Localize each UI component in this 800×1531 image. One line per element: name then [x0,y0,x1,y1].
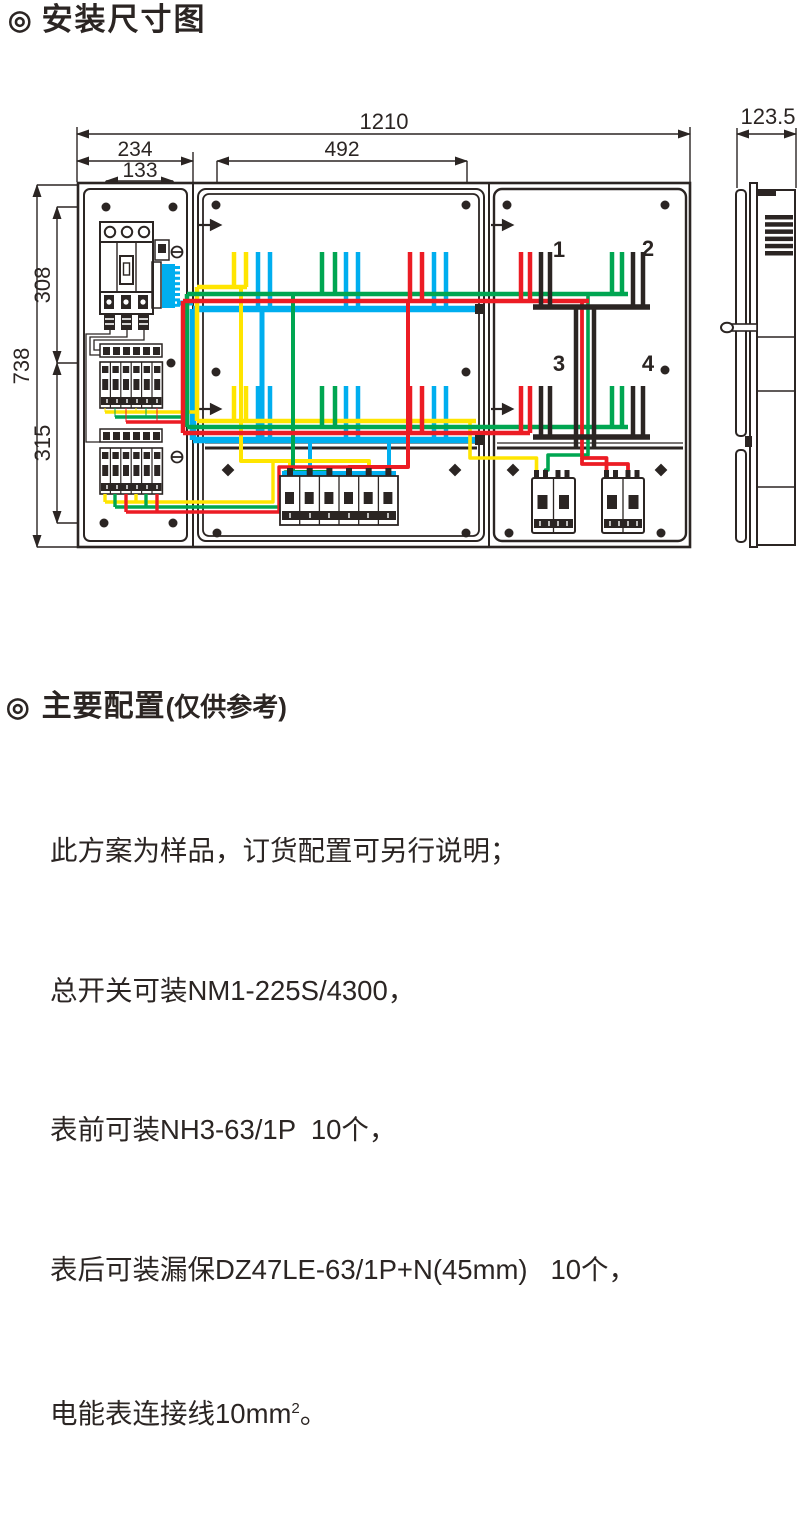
dim-label-738: 738 [9,348,34,385]
side-door-upper [736,190,746,436]
dim-label-1210: 1210 [360,109,409,134]
config-line-3: 表前可装NH3-63/1P 10个， [50,1107,794,1154]
side-door-lower [736,450,746,542]
config-subtitle: (仅供参考) [166,687,287,724]
config-line-1: 此方案为样品，订货配置可另行说明； [50,828,794,875]
config-heading: ◎ 主要配置 (仅供参考) [6,681,794,725]
dim-label-133: 133 [122,159,157,182]
side-flange [750,183,757,547]
dim-label-234: 234 [117,138,152,161]
mini-breaker-row-2 [100,448,162,494]
leakage-breaker-group-a [532,470,575,533]
dim-label-308: 308 [30,267,55,304]
main-breaker-lugs [104,314,149,330]
page: { "page": { "bullet": "◎", "title": "安装尺… [0,0,800,954]
dimension-overall-height [37,185,80,547]
meter-label-2: 2 [642,236,654,261]
main-configuration-section: ◎ 主要配置 (仅供参考) 此方案为样品，订货配置可另行说明； 总开关可装NM1… [6,681,794,1531]
config-line-5-text: 电能表连接线10mm [50,1398,291,1429]
config-line-5-period: 。 [300,1398,328,1429]
config-line-5-superscript: 2 [291,1400,299,1417]
meter-label-1: 1 [553,237,565,262]
enclosure-side-view [721,128,796,547]
meter-label-3: 3 [553,351,565,376]
config-bullet-icon: ◎ [6,692,30,723]
leakage-breaker-group-b [602,470,644,533]
config-line-2: 总开关可装NM1-225S/4300， [50,968,794,1015]
dimension-overall-width [77,127,690,182]
config-line-5: 电能表连接线10mm2。 [50,1386,794,1438]
side-body [757,190,795,545]
dimension-depth [737,128,796,188]
meter-post-breaker-row [280,468,398,525]
installation-dimension-diagram: 1210 234 133 492 738 308 315 [0,0,800,664]
meter-label-4: 4 [642,351,655,376]
dim-label-492: 492 [324,138,359,161]
dim-label-315: 315 [30,425,55,462]
door-latch [721,323,757,333]
dim-label-123-5: 123.5 [740,104,795,129]
config-lines: 此方案为样品，订货配置可另行说明； 总开关可装NM1-225S/4300， 表前… [50,735,794,1531]
mini-breaker-row-1 [100,362,162,408]
config-title: 主要配置 [42,681,166,725]
config-line-4: 表后可装漏保DZ47LE-63/1P+N(45mm) 10个， [50,1247,794,1294]
